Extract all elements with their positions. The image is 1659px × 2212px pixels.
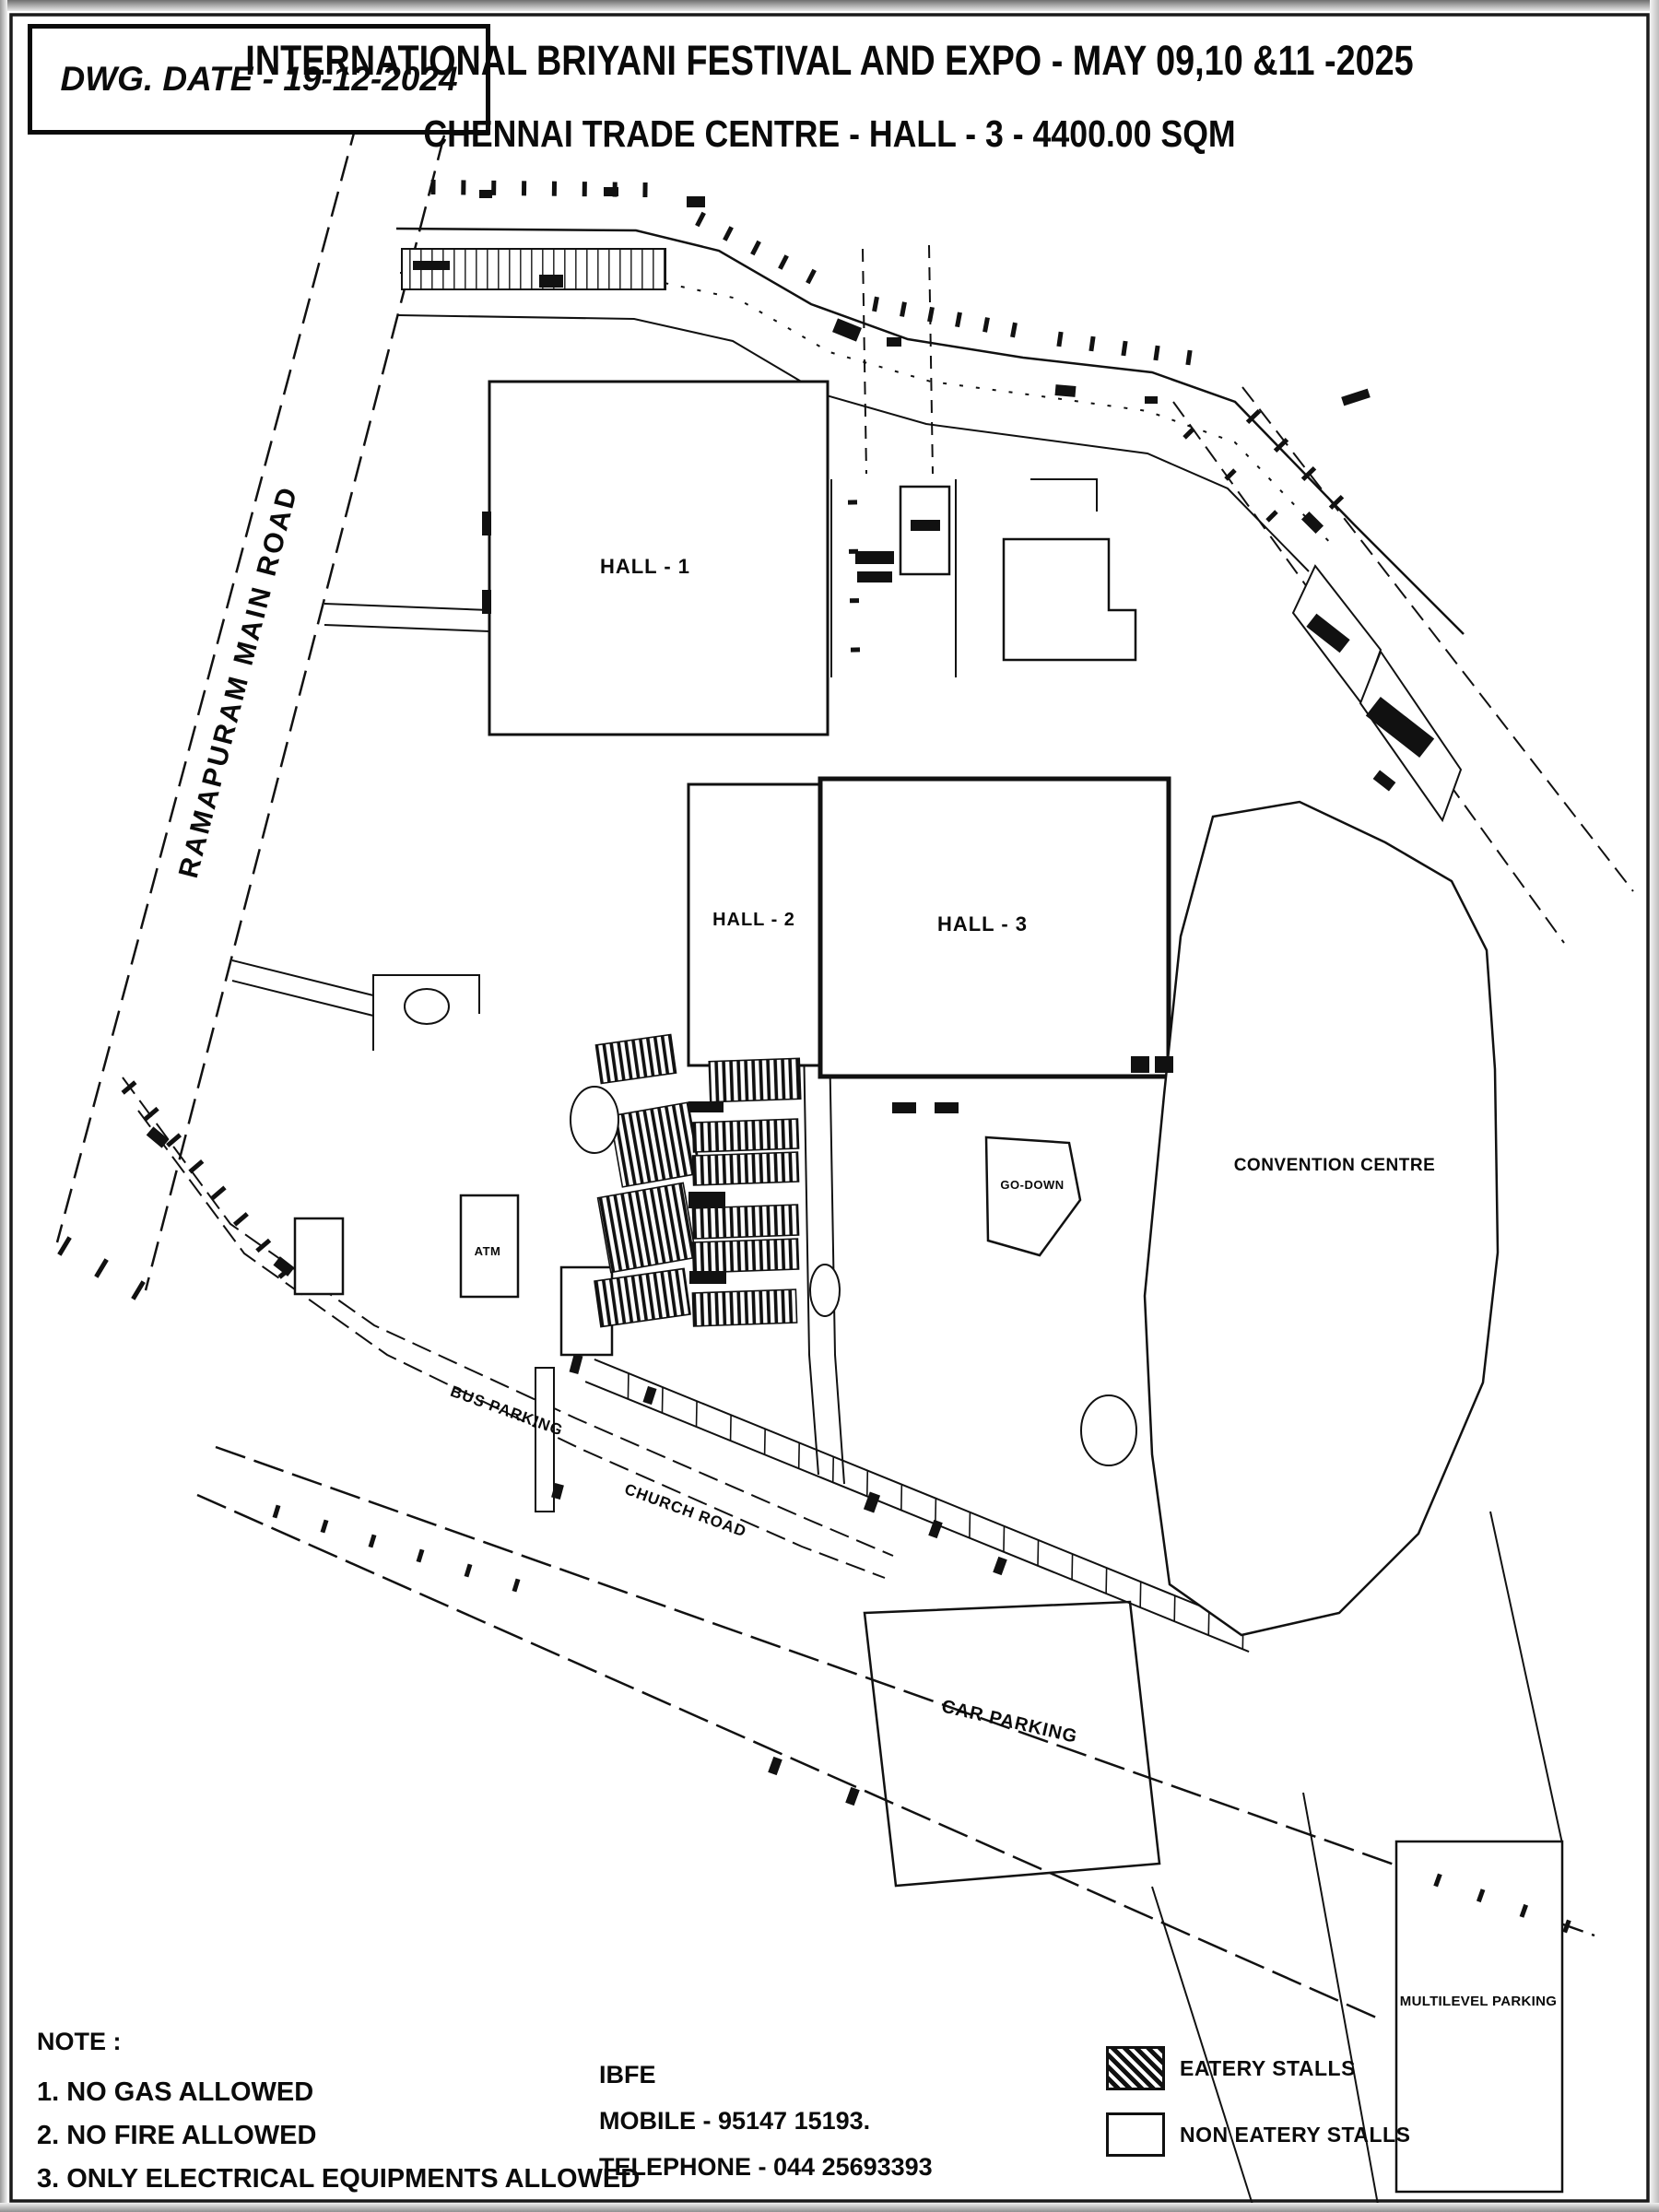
- parking-tick: [752, 241, 759, 254]
- stall-row-2: [709, 1058, 800, 1101]
- parking-tick: [257, 1241, 270, 1252]
- illegible-mark: [570, 1354, 583, 1374]
- parking-tick: [235, 1214, 248, 1225]
- parking-tick: [1013, 323, 1016, 337]
- illegible-mark: [845, 1787, 860, 1806]
- notes-block: NOTE : 1. NO GAS ALLOWED 2. NO FIRE ALLO…: [37, 2028, 640, 2201]
- stall-row-rect: [692, 1239, 798, 1273]
- road-court-line-1: [232, 960, 373, 995]
- parking-tick: [807, 270, 814, 283]
- landscape-circle-4: [1081, 1395, 1136, 1465]
- scanned-site-plan-sheet: { "page": { "dwg_date": "DWG. DATE - 19-…: [0, 0, 1659, 2212]
- stall-row-rect: [692, 1205, 798, 1239]
- illegible-mark: [768, 1757, 782, 1775]
- page-title: INTERNATIONAL BRIYANI FESTIVAL AND EXPO …: [133, 37, 1526, 85]
- car-parking-plot: [865, 1602, 1159, 1886]
- stall-row-rect: [692, 1119, 798, 1152]
- road-hall1-access-1: [324, 604, 489, 610]
- parking-tick: [466, 1564, 470, 1576]
- contact-telephone: TELEPHONE - 044 25693393: [599, 2144, 933, 2190]
- illegible-mark: [993, 1557, 1007, 1575]
- parking-tick: [168, 1135, 181, 1146]
- illegible-mark: [1155, 1056, 1173, 1073]
- parking-tick: [59, 1238, 69, 1255]
- road-stall-lane-2: [829, 1040, 844, 1484]
- illegible-mark: [479, 190, 492, 198]
- illegible-mark: [688, 1101, 724, 1112]
- convention-centre-building: [1145, 802, 1498, 1635]
- stall-row-8: [692, 1239, 798, 1273]
- map-label-ramapuram-main-road: RAMAPURAM MAIN ROAD: [173, 482, 304, 881]
- stall-row-6: [598, 1182, 697, 1272]
- parking-tick: [96, 1260, 106, 1277]
- illegible-mark: [642, 1386, 656, 1405]
- map-label-go-down: GO-DOWN: [1000, 1178, 1064, 1192]
- parking-tick: [371, 1535, 374, 1547]
- map-label-convention-centre: CONVENTION CENTRE: [1234, 1156, 1436, 1175]
- landscape-circle-1: [571, 1087, 618, 1153]
- legend-row-non-eatery: NON EATERY STALLS: [1106, 2112, 1410, 2157]
- parking-tick: [133, 1282, 143, 1300]
- illegible-mark: [604, 187, 618, 196]
- stall-row-rect: [692, 1152, 798, 1185]
- parking-tick: [190, 1161, 203, 1172]
- illegible-mark: [1341, 389, 1371, 406]
- map-label-church-road: CHURCH ROAD: [622, 1480, 749, 1541]
- illegible-mark: [687, 196, 705, 207]
- illegible-mark: [413, 261, 450, 270]
- road-l-building-ext: [1030, 479, 1097, 512]
- parking-tick: [985, 318, 988, 333]
- parking-tick: [1565, 1920, 1570, 1932]
- notes-heading: NOTE :: [37, 2028, 640, 2056]
- stall-row-rect: [709, 1058, 800, 1101]
- parking-tick: [1226, 470, 1235, 479]
- illegible-mark: [1373, 770, 1396, 791]
- stall-row-rect: [598, 1182, 697, 1272]
- illegible-mark: [855, 551, 894, 564]
- footpath-rung: [662, 1387, 663, 1413]
- parking-tick: [418, 1549, 422, 1561]
- parking-tick: [514, 1579, 518, 1591]
- illegible-mark: [935, 1102, 959, 1113]
- illegible-mark: [539, 275, 563, 288]
- note-item-1: 1. NO GAS ALLOWED: [37, 2071, 640, 2114]
- contact-org: IBFE: [599, 2052, 933, 2098]
- parking-tick: [875, 297, 877, 312]
- road-hall1-access-2: [324, 625, 489, 631]
- parking-tick: [1188, 350, 1190, 365]
- footpath-rung: [765, 1429, 766, 1454]
- parking-tick: [902, 302, 905, 317]
- road-stall-lane-1: [804, 1040, 818, 1475]
- illegible-mark: [892, 1102, 916, 1113]
- parking-tick: [275, 1505, 278, 1517]
- map-label-car-parking: CAR PARKING: [939, 1696, 1079, 1747]
- non-eatery-stalls-swatch: [1106, 2112, 1165, 2157]
- go-down-building: [986, 1137, 1080, 1255]
- parking-tick: [697, 213, 703, 226]
- exit-strip: [535, 1368, 554, 1512]
- illegible-mark: [911, 520, 940, 531]
- footpath-rung: [1174, 1595, 1175, 1621]
- parking-tick: [1091, 336, 1093, 351]
- footpath-rung: [867, 1471, 868, 1497]
- footpath-rung: [970, 1512, 971, 1538]
- stall-row-1: [595, 1034, 676, 1083]
- footpath-rung: [1106, 1568, 1107, 1594]
- note-item-3: 3. ONLY ELECTRICAL EQUIPMENTS ALLOWED: [37, 2158, 640, 2201]
- map-label-hall-2: HALL - 2: [712, 910, 795, 930]
- map-label-multilevel-parking: MULTILEVEL PARKING: [1400, 1994, 1557, 2009]
- landscape-circle-2: [405, 989, 449, 1024]
- footpath-rung: [731, 1415, 732, 1441]
- non-eatery-stalls-label: NON EATERY STALLS: [1180, 2123, 1410, 2147]
- parking-tick: [958, 312, 960, 327]
- illegible-mark: [1145, 396, 1158, 404]
- illegible-mark: [1055, 384, 1077, 397]
- footpath-rung: [1038, 1540, 1039, 1566]
- parking-tick: [1156, 346, 1158, 360]
- parking-tick: [1184, 429, 1194, 438]
- road-ramapuram-edge-1: [57, 85, 367, 1242]
- map-buildings: [295, 249, 1562, 2192]
- legend: EATERY STALLS NON EATERY STALLS: [1106, 2046, 1410, 2179]
- stall-row-7: [692, 1205, 798, 1239]
- stall-row-10: [692, 1289, 796, 1326]
- site-plan: RAMAPURAM MAIN ROADHALL - 1HALL - 2HALL …: [0, 0, 1659, 2212]
- page-subtitle: CHENNAI TRADE CENTRE - HALL - 3 - 4400.0…: [108, 112, 1551, 156]
- stall-row-rect: [595, 1034, 676, 1083]
- footpath-rung: [1072, 1554, 1073, 1580]
- eatery-stalls-label: EATERY STALLS: [1180, 2056, 1356, 2081]
- parking-tick: [780, 255, 786, 268]
- note-item-2: 2. NO FIRE ALLOWED: [37, 2114, 640, 2158]
- illegible-mark: [482, 590, 491, 614]
- footpath-rung: [799, 1442, 800, 1468]
- illegible-mark: [887, 337, 901, 347]
- stall-row-4: [692, 1119, 798, 1152]
- illegible-mark: [482, 512, 491, 535]
- illegible-mark: [688, 1192, 725, 1208]
- contact-mobile: MOBILE - 95147 15193.: [599, 2098, 933, 2144]
- illegible-mark: [689, 1271, 726, 1284]
- parking-tick: [930, 307, 933, 322]
- eatery-stalls-swatch: [1106, 2046, 1165, 2090]
- illegible-mark: [1131, 1056, 1149, 1073]
- stall-row-rect: [692, 1289, 796, 1326]
- parking-tick: [724, 227, 731, 240]
- footpath-rung: [901, 1485, 902, 1511]
- road-right-bound: [1490, 1512, 1562, 1843]
- stall-row-rect: [610, 1102, 700, 1187]
- map-label-hall-1: HALL - 1: [600, 555, 690, 578]
- road-corridor-dash-2: [929, 245, 933, 474]
- landscape-circle-3: [810, 1265, 840, 1316]
- illegible-mark: [857, 571, 892, 582]
- l-building: [1004, 539, 1135, 660]
- parking-tick: [323, 1520, 326, 1532]
- footpath-rung: [1140, 1582, 1141, 1607]
- legend-row-eatery: EATERY STALLS: [1106, 2046, 1410, 2090]
- parking-tick: [1059, 332, 1061, 347]
- footpath-rung: [697, 1401, 698, 1427]
- parking-tick: [1267, 512, 1277, 521]
- contact-block: IBFE MOBILE - 95147 15193. TELEPHONE - 0…: [599, 2052, 933, 2190]
- stall-row-5: [692, 1152, 798, 1185]
- map-label-atm: ATM: [475, 1244, 501, 1258]
- map-label-hall-3: HALL - 3: [937, 912, 1028, 935]
- footpath-rung: [833, 1456, 834, 1482]
- road-court-line-2: [232, 981, 373, 1016]
- footpath-rung: [628, 1373, 629, 1399]
- parking-tick: [1124, 341, 1125, 356]
- parking-tick: [212, 1187, 225, 1198]
- small-building-2: [295, 1218, 343, 1294]
- illegible-mark: [147, 1126, 170, 1147]
- footpath-rung: [1004, 1526, 1005, 1552]
- stall-row-3: [610, 1102, 700, 1187]
